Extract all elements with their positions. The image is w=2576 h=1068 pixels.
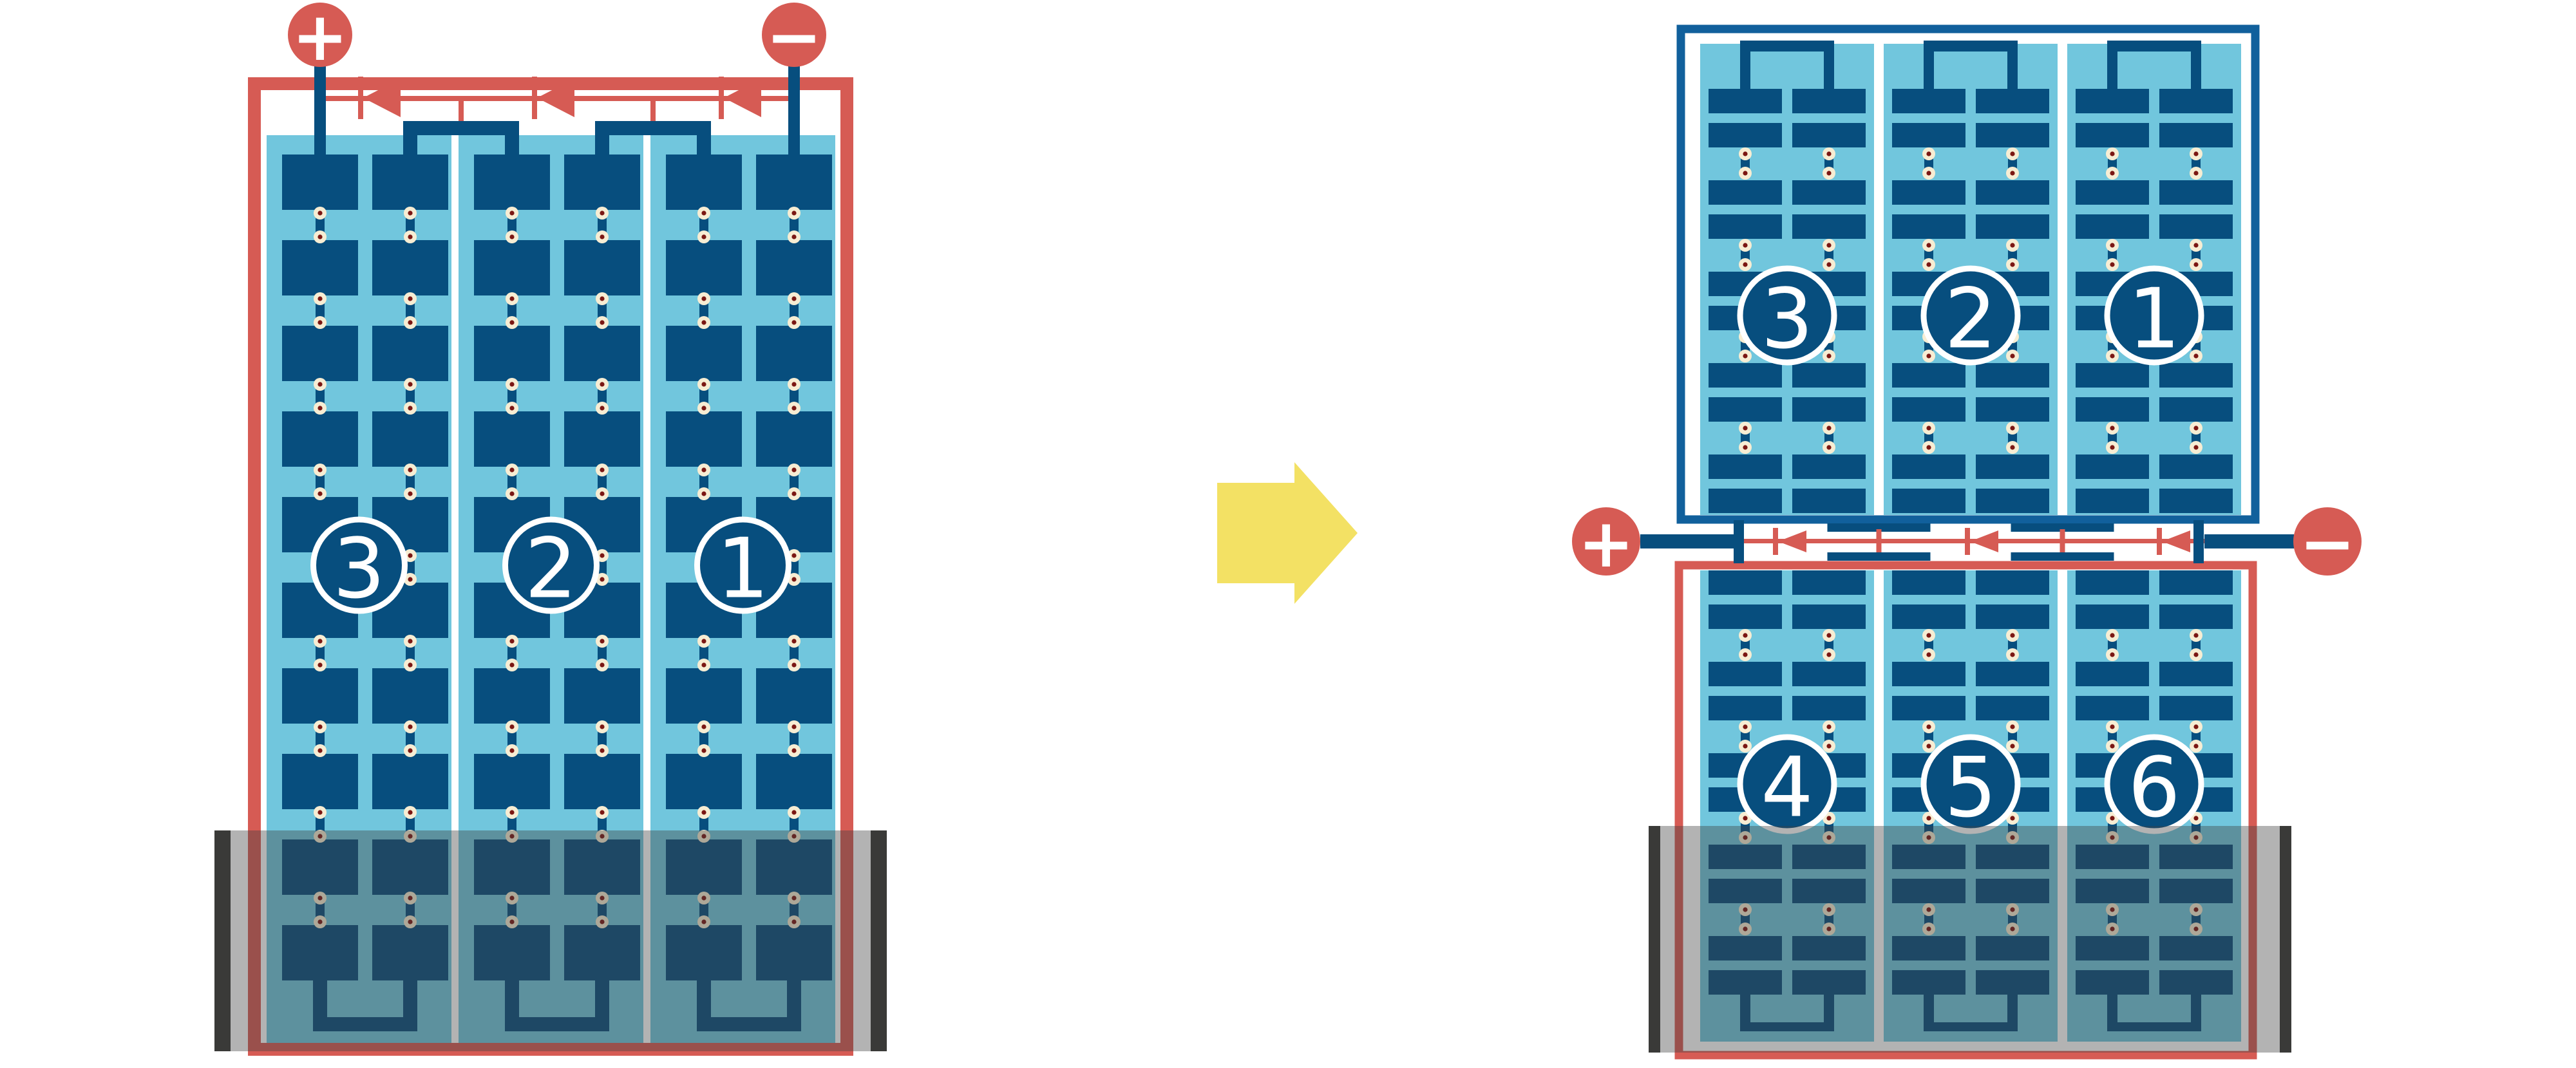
electrode-cell: [2159, 214, 2233, 239]
current-arrowhead-left-icon: [1778, 530, 1806, 552]
electrode-cell: [2076, 570, 2149, 595]
electrode-cell: [2159, 604, 2233, 629]
weld-dot-core: [317, 234, 322, 239]
weld-dot-core: [317, 296, 322, 301]
tank-liquid-overlay: [1649, 826, 2291, 1053]
tank-liquid-overlay: [214, 830, 887, 1051]
electrode-cell: [1976, 570, 2049, 595]
electrode-cell: [1792, 89, 1866, 113]
weld-dot-core: [600, 748, 604, 753]
electrode-cell: [474, 240, 550, 295]
weld-dot-core: [2110, 151, 2114, 156]
electrode-cell: [1792, 696, 1866, 720]
arrow-right-icon: [1217, 462, 1358, 604]
weld-dot-core: [701, 467, 706, 472]
electrode-cell: [282, 326, 358, 381]
weld-dot-core: [1743, 445, 1747, 449]
negative-terminal-left: −: [762, 0, 826, 76]
electrode-cell: [564, 326, 640, 381]
electrode-cell: [282, 668, 358, 724]
weld-dot-core: [509, 211, 514, 215]
weld-dot-core: [701, 662, 706, 667]
weld-dot-core: [2193, 426, 2198, 430]
electrode-cell: [756, 754, 832, 809]
weld-dot-core: [509, 810, 514, 814]
top-bus-leg: [2107, 52, 2117, 89]
weld-dot-core: [2193, 744, 2198, 748]
electrode-cell: [1976, 696, 2049, 720]
electrode-cell: [1892, 662, 1965, 686]
weld-dot-core: [2193, 816, 2198, 820]
module-number: 2: [1944, 272, 1996, 368]
top-bus-leg: [505, 135, 519, 156]
electrode-cell: [666, 240, 742, 295]
electrode-cell: [282, 754, 358, 809]
diode-bar: [1965, 528, 1970, 555]
weld-dot-core: [1926, 151, 1931, 156]
weld-dot-core: [2010, 353, 2014, 358]
weld-dot-core: [600, 211, 604, 215]
electrode-cell: [2076, 696, 2149, 720]
weld-dot-core: [2110, 652, 2114, 657]
electrode-cell: [1976, 454, 2049, 479]
electrode-cell: [2159, 397, 2233, 422]
weld-dot-core: [317, 639, 322, 643]
weld-dot-core: [1926, 262, 1931, 267]
weld-dot-core: [1826, 744, 1831, 748]
electrode-cell: [2076, 214, 2149, 239]
weld-dot-core: [1826, 816, 1831, 820]
weld-dot-core: [1826, 171, 1831, 175]
weld-dot-core: [2010, 724, 2014, 729]
electrode-cell: [666, 155, 742, 210]
weld-dot-core: [1926, 243, 1931, 247]
weld-dot-core: [2193, 262, 2198, 267]
weld-dot-core: [791, 320, 796, 324]
weld-dot-core: [2010, 744, 2014, 748]
weld-dot-core: [1743, 816, 1747, 820]
weld-dot-core: [317, 748, 322, 753]
weld-dot-core: [701, 639, 706, 643]
weld-dot-core: [1826, 243, 1831, 247]
weld-dot-core: [2193, 151, 2198, 156]
weld-dot-core: [2193, 353, 2198, 358]
top-bus-bar: [1740, 41, 1834, 52]
weld-dot-core: [791, 577, 796, 581]
weld-dot-core: [2110, 633, 2114, 637]
electrode-cell: [1792, 123, 1866, 147]
weld-dot-core: [600, 810, 604, 814]
weld-dot-core: [2010, 243, 2014, 247]
weld-dot-core: [791, 810, 796, 814]
weld-dot-core: [1926, 353, 1931, 358]
electrode-cell: [372, 668, 448, 724]
weld-dot-core: [701, 320, 706, 324]
weld-dot-core: [701, 724, 706, 729]
weld-dot-core: [791, 639, 796, 643]
electrode-cell: [2076, 123, 2149, 147]
electrode-cell: [2159, 662, 2233, 686]
weld-dot-core: [791, 724, 796, 729]
weld-dot-core: [791, 491, 796, 496]
weld-dot-core: [2193, 171, 2198, 175]
weld-dot-core: [408, 296, 412, 301]
electrode-cell: [1792, 489, 1866, 513]
weld-dot-core: [2010, 633, 2014, 637]
weld-dot-core: [408, 211, 412, 215]
electrode-cell: [1892, 89, 1965, 113]
module-number: 1: [717, 521, 769, 617]
weld-dot-core: [2010, 262, 2014, 267]
weld-dot-core: [2110, 262, 2114, 267]
bus-drop-line: [459, 101, 464, 124]
negative-terminal-stem-right: [2204, 534, 2294, 548]
electrode-cell: [756, 668, 832, 724]
minus-icon: −: [766, 0, 822, 76]
electrode-cell: [474, 668, 550, 724]
weld-dot-core: [701, 748, 706, 753]
electrode-cell: [1976, 123, 2049, 147]
weld-dot-core: [408, 406, 412, 410]
electrode-cell: [1976, 604, 2049, 629]
weld-dot-core: [701, 382, 706, 386]
electrode-cell: [1792, 662, 1866, 686]
weld-dot-core: [509, 406, 514, 410]
weld-dot-core: [600, 406, 604, 410]
weld-dot-core: [2110, 724, 2114, 729]
weld-dot-core: [1743, 262, 1747, 267]
weld-dot-core: [600, 491, 604, 496]
weld-dot-core: [408, 553, 412, 557]
weld-dot-core: [701, 406, 706, 410]
electrode-cell: [1709, 662, 1782, 686]
weld-dot-core: [2010, 151, 2014, 156]
weld-dot-core: [1743, 171, 1747, 175]
top-bus-leg: [1824, 52, 1834, 89]
weld-dot-core: [791, 296, 796, 301]
weld-dot-core: [2193, 445, 2198, 449]
weld-dot-core: [600, 320, 604, 324]
weld-dot-core: [2110, 171, 2114, 175]
weld-dot-core: [317, 382, 322, 386]
top-bus-leg: [403, 135, 417, 156]
electrode-cell: [756, 155, 832, 210]
electrode-cell: [2076, 397, 2149, 422]
electrolyte-tank-left: [214, 830, 887, 1051]
electrode-cell: [1709, 454, 1782, 479]
top-bus-leg: [1924, 52, 1934, 89]
weld-dot-core: [1743, 652, 1747, 657]
module-numbers-left: 321: [314, 520, 789, 617]
weld-dot-core: [2110, 353, 2114, 358]
tank-wall-left: [1649, 826, 1660, 1053]
weld-dot-core: [317, 320, 322, 324]
weld-dot-core: [701, 810, 706, 814]
weld-dot-core: [791, 662, 796, 667]
electrode-cell: [372, 754, 448, 809]
electrode-cell: [2159, 180, 2233, 205]
electrode-cell: [564, 411, 640, 467]
weld-dot-core: [791, 406, 796, 410]
electrode-cell: [1892, 454, 1965, 479]
electrode-cell: [756, 411, 832, 467]
weld-dot-core: [2010, 652, 2014, 657]
electrode-cell: [1709, 89, 1782, 113]
bus-drop-line: [650, 101, 656, 124]
electrode-cell: [1792, 214, 1866, 239]
electrode-cell: [372, 155, 448, 210]
electrode-cell: [1892, 570, 1965, 595]
weld-dot-core: [1743, 243, 1747, 247]
weld-dot-core: [509, 296, 514, 301]
weld-dot-core: [2010, 171, 2014, 175]
top-bus-leg: [1740, 52, 1750, 89]
weld-dot-core: [1926, 652, 1931, 657]
weld-dot-core: [317, 467, 322, 472]
weld-dot-core: [1926, 816, 1931, 820]
weld-dot-core: [1743, 353, 1747, 358]
diode-bar: [1773, 528, 1778, 555]
electrode-cell: [1976, 180, 2049, 205]
module-number: 3: [333, 521, 385, 617]
current-arrowhead-left-icon: [1970, 530, 1998, 552]
electrode-cell: [2159, 89, 2233, 113]
electrode-cell: [1892, 123, 1965, 147]
plus-icon: +: [292, 0, 348, 76]
weld-dot-core: [408, 234, 412, 239]
electrode-cell: [372, 411, 448, 467]
weld-dot-core: [317, 406, 322, 410]
weld-dot-core: [509, 467, 514, 472]
weld-dot-core: [1826, 151, 1831, 156]
bus-drop-line: [1877, 529, 1882, 552]
electrode-cell: [1709, 570, 1782, 595]
weld-dot-core: [2193, 724, 2198, 729]
electrode-cell: [1709, 696, 1782, 720]
weld-dot-core: [791, 382, 796, 386]
electrode-cell: [564, 754, 640, 809]
weld-dot-core: [317, 724, 322, 729]
electrode-cell: [474, 754, 550, 809]
electrode-cell: [1892, 397, 1965, 422]
weld-dot-core: [1826, 633, 1831, 637]
top-bus-bar: [1924, 41, 2018, 52]
electrode-cell: [2159, 123, 2233, 147]
weld-dot-core: [1826, 262, 1831, 267]
weld-dot-core: [791, 211, 796, 215]
electrode-cell: [666, 668, 742, 724]
electrode-cell: [564, 240, 640, 295]
weld-dot-core: [2010, 816, 2014, 820]
electrode-cell: [282, 411, 358, 467]
weld-dot-core: [600, 662, 604, 667]
bus-drop-line: [2060, 529, 2065, 552]
tank-wall-right: [871, 830, 887, 1051]
weld-dot-core: [408, 491, 412, 496]
weld-dot-core: [1926, 445, 1931, 449]
electrode-cell: [2076, 180, 2149, 205]
weld-dot-core: [600, 467, 604, 472]
weld-dot-core: [317, 662, 322, 667]
top-bus-leg: [2191, 52, 2201, 89]
weld-dot-core: [509, 662, 514, 667]
weld-dot-core: [408, 748, 412, 753]
weld-dot-core: [408, 662, 412, 667]
weld-dot-core: [600, 724, 604, 729]
weld-dot-core: [701, 491, 706, 496]
weld-dot-core: [2110, 243, 2114, 247]
weld-dot-core: [509, 724, 514, 729]
weld-dot-core: [1826, 445, 1831, 449]
weld-dot-core: [1926, 744, 1931, 748]
electrode-cell: [2159, 570, 2233, 595]
electrode-cell: [1892, 696, 1965, 720]
electrode-cell: [372, 240, 448, 295]
weld-dot-core: [408, 320, 412, 324]
weld-dot-core: [1826, 652, 1831, 657]
electrode-cell: [1709, 397, 1782, 422]
electrode-cell: [1792, 604, 1866, 629]
electrode-cell: [2159, 696, 2233, 720]
top-bus-leg: [595, 135, 609, 156]
weld-dot-core: [1743, 151, 1747, 156]
electrode-cell: [666, 754, 742, 809]
weld-dot-core: [1743, 744, 1747, 748]
module-numbers-right-bottom: 456: [1740, 737, 2201, 836]
terminal-riser: [2193, 520, 2204, 563]
electrode-cell: [1976, 397, 2049, 422]
positive-terminal-left: +: [288, 0, 352, 76]
weld-dot-core: [1926, 633, 1931, 637]
weld-dot-core: [600, 234, 604, 239]
tank-wall-right: [2280, 826, 2291, 1053]
electrode-cell: [1709, 180, 1782, 205]
top-bus-leg: [697, 135, 711, 156]
electrode-cell: [282, 155, 358, 210]
weld-dot-core: [2110, 816, 2114, 820]
weld-dot-core: [1743, 724, 1747, 729]
weld-dot-core: [317, 211, 322, 215]
electrode-cell: [1709, 123, 1782, 147]
electrode-cell: [1976, 214, 2049, 239]
weld-dot-core: [509, 748, 514, 753]
diode-bar: [2157, 528, 2162, 555]
electrode-cell: [756, 326, 832, 381]
tank-wall-left: [214, 830, 231, 1051]
electrode-cell: [1976, 662, 2049, 686]
weld-dot-core: [509, 320, 514, 324]
weld-dot-core: [1743, 426, 1747, 430]
weld-dot-core: [600, 577, 604, 581]
positive-terminal-stem-right: [1640, 534, 1740, 548]
electrode-cell: [474, 155, 550, 210]
weld-dot-core: [408, 382, 412, 386]
weld-dot-core: [1926, 426, 1931, 430]
electrode-cell: [1709, 214, 1782, 239]
top-bus-bar: [595, 121, 711, 135]
weld-dot-core: [600, 382, 604, 386]
electrode-cell: [1892, 214, 1965, 239]
battery-reconfiguration-diagram: + − 321 321 456 + −: [0, 0, 2576, 1068]
top-bus-bar: [2107, 41, 2201, 52]
electrode-cell: [666, 411, 742, 467]
weld-dot-core: [600, 296, 604, 301]
weld-dot-core: [791, 467, 796, 472]
plus-icon: +: [1578, 504, 1634, 583]
electrode-cell: [2076, 662, 2149, 686]
weld-dot-core: [2110, 426, 2114, 430]
module-number: 2: [525, 521, 577, 617]
electrode-cell: [1976, 489, 2049, 513]
weld-dot-core: [317, 491, 322, 496]
weld-dot-core: [2110, 445, 2114, 449]
weld-dot-core: [509, 234, 514, 239]
weld-dot-core: [408, 639, 412, 643]
weld-dot-core: [509, 639, 514, 643]
electrode-cell: [756, 240, 832, 295]
module-number: 6: [2128, 740, 2180, 836]
weld-dot-core: [1926, 171, 1931, 175]
interconnect-tab: [2011, 552, 2114, 561]
weld-dot-core: [2193, 652, 2198, 657]
interconnect-strip-right: [1734, 520, 2204, 563]
electrode-cell: [2159, 454, 2233, 479]
electrolyte-tank-right: [1649, 826, 2291, 1053]
weld-dot-core: [701, 211, 706, 215]
electrode-cell: [1892, 180, 1965, 205]
weld-dot-core: [791, 553, 796, 557]
electrode-cell: [2076, 454, 2149, 479]
electrode-cell: [2076, 89, 2149, 113]
electrode-cell: [1792, 397, 1866, 422]
electrode-cell: [1792, 454, 1866, 479]
module-number: 4: [1761, 740, 1813, 836]
weld-dot-core: [791, 234, 796, 239]
module-number: 1: [2128, 272, 2180, 368]
electrode-cell: [282, 240, 358, 295]
electrode-cell: [1792, 570, 1866, 595]
electrode-cell: [1976, 89, 2049, 113]
minus-icon: −: [2299, 504, 2355, 583]
module-number: 3: [1761, 272, 1813, 368]
weld-dot-core: [1743, 633, 1747, 637]
top-bus-leg: [2007, 52, 2018, 89]
module-numbers-right-top: 321: [1740, 268, 2201, 368]
weld-dot-core: [701, 296, 706, 301]
electrode-cell: [1709, 489, 1782, 513]
electrode-cell: [1709, 604, 1782, 629]
electrode-cell: [474, 411, 550, 467]
electrode-cell: [372, 326, 448, 381]
electrode-cell: [2076, 489, 2149, 513]
weld-dot-core: [1926, 724, 1931, 729]
weld-dot-core: [2110, 744, 2114, 748]
electrode-cell: [2076, 604, 2149, 629]
weld-dot-core: [408, 467, 412, 472]
interconnect-tab: [1828, 552, 1931, 561]
weld-dot-core: [408, 724, 412, 729]
current-arrowhead-left-icon: [2162, 530, 2190, 552]
weld-dot-core: [2010, 426, 2014, 430]
electrode-cell: [666, 326, 742, 381]
electrode-cell: [2159, 489, 2233, 513]
module-number: 5: [1944, 740, 1996, 836]
weld-dot-core: [408, 810, 412, 814]
electrode-cell: [1892, 604, 1965, 629]
weld-dot-core: [1826, 353, 1831, 358]
weld-dot-core: [701, 234, 706, 239]
weld-dot-core: [509, 382, 514, 386]
